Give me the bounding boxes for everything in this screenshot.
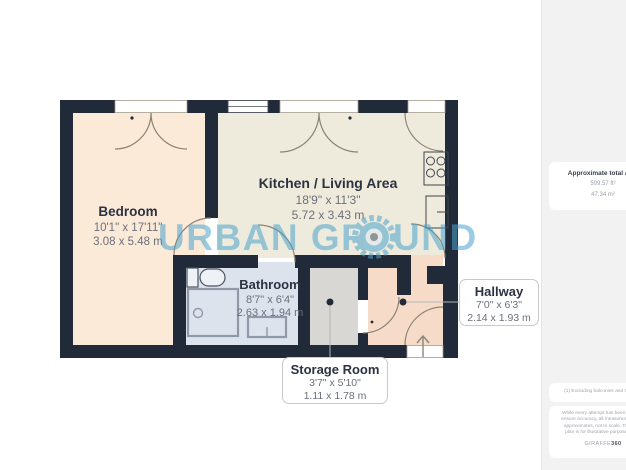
storage-callout-name: Storage Room	[285, 362, 385, 377]
hallway-callout-metric: 2.14 x 1.93 m	[462, 312, 536, 325]
disclaimer-line: ensure accuracy, all measurements are	[549, 417, 626, 423]
bedroom-metric: 3.08 x 5.48 m	[93, 236, 163, 248]
window-icon	[228, 101, 268, 113]
giraffe360-logo-text: GIRAFFE	[584, 441, 611, 447]
storage-room-callout: Storage Room 3'7" x 5'10" 1.11 x 1.78 m	[282, 357, 388, 404]
total-area-card: Approximate total area 509.57 ft² 47.34 …	[549, 162, 626, 210]
kitchen-imperial: 18'9" x 11'3"	[296, 193, 361, 207]
total-area-title: Approximate total area	[549, 169, 626, 178]
storage-callout-metric: 1.11 x 1.78 m	[285, 390, 385, 403]
storage-room	[310, 262, 358, 345]
bathroom-label: Bathroom	[239, 277, 300, 292]
hallway-callout-imperial: 7'0" x 6'3"	[462, 299, 536, 312]
footnote-text: (1) Excluding balconies and terraces	[549, 389, 626, 394]
watermark-text-right: UND	[393, 217, 478, 258]
giraffe360-logo: GIRAFFE360	[549, 441, 626, 447]
bedroom-imperial: 10'1" x 17'11"	[94, 222, 163, 234]
kitchen-label: Kitchen / Living Area	[259, 175, 398, 191]
footnote-card: (1) Excluding balconies and terraces	[549, 383, 626, 402]
total-area-ft: 509.57 ft²	[549, 180, 626, 189]
giraffe360-logo-360: 360	[611, 441, 621, 447]
total-area-m: 47.34 m²	[549, 191, 626, 200]
watermark-text-left: URBAN GR	[158, 217, 369, 258]
disclaimer-line: plan is for illustrative purposes only.	[549, 430, 626, 436]
hallway-callout-name: Hallway	[462, 284, 536, 299]
bathroom-imperial: 8'7" x 6'4"	[246, 294, 294, 306]
hallway-anchor-dot	[400, 299, 407, 306]
toilet-icon	[187, 268, 225, 287]
info-sidebar: Approximate total area 509.57 ft² 47.34 …	[541, 0, 626, 470]
bedroom-label: Bedroom	[98, 204, 157, 219]
bathroom-metric: 2.63 x 1.94 m	[237, 307, 304, 319]
storage-anchor-dot	[327, 299, 334, 306]
hallway-callout: Hallway 7'0" x 6'3" 2.14 x 1.93 m	[459, 279, 539, 326]
disclaimer-card: While every attempt has been made to ens…	[549, 406, 626, 458]
watermark: URBAN GR UND	[158, 217, 478, 258]
storage-callout-imperial: 3'7" x 5'10"	[285, 377, 385, 390]
floorplan-page: Bedroom 10'1" x 17'11" 3.08 x 5.48 m Kit…	[0, 0, 626, 470]
